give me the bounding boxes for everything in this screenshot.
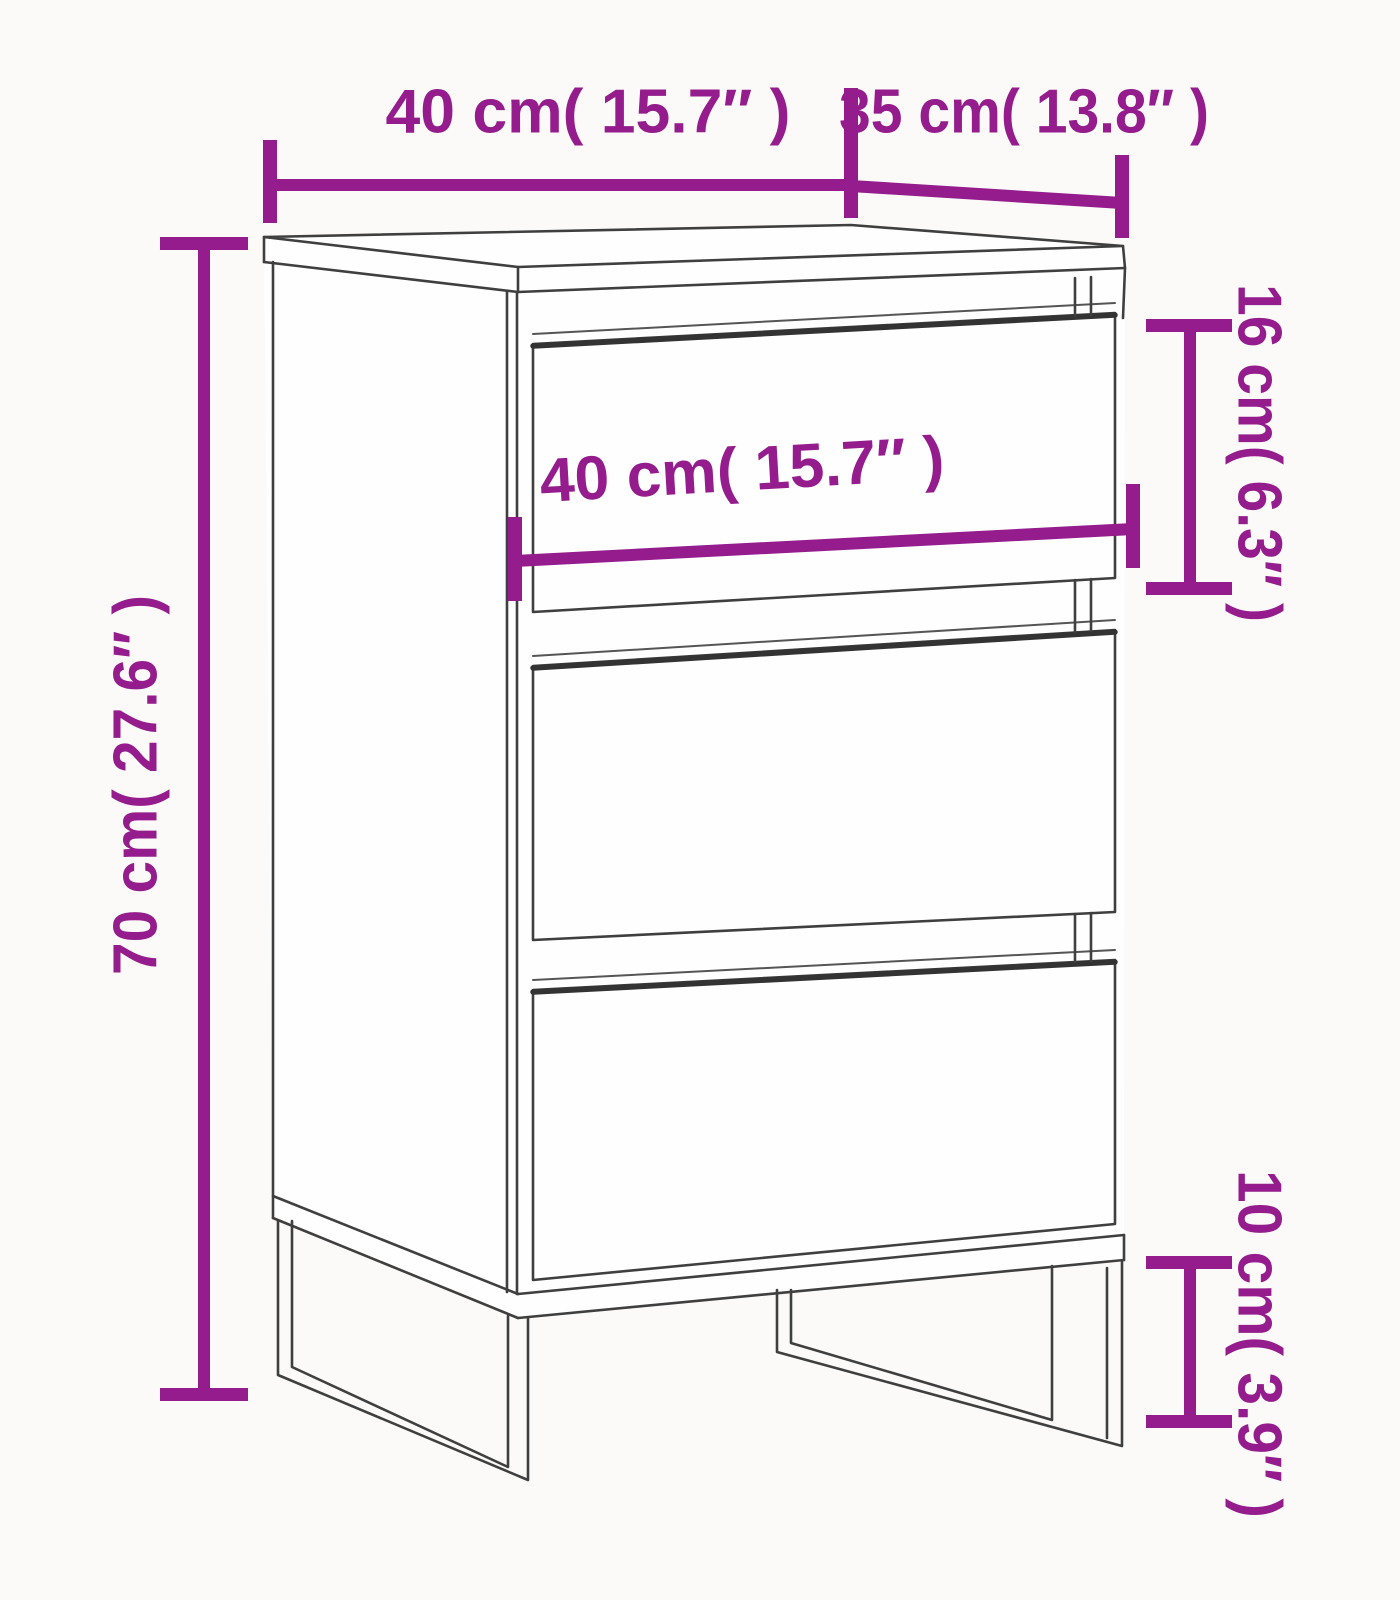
sideboard-dimension-diagram: 40 cm( 15.7″ ) 35 cm( 13.8″ ) 70 cm( 27.… xyxy=(0,0,1400,1600)
height-cap-bottom xyxy=(160,1388,248,1401)
cabinet-body-face xyxy=(264,225,1125,1318)
height-cap-top xyxy=(160,237,248,250)
drawer-height-cap-top xyxy=(1146,319,1232,332)
drawer-width-tick-right xyxy=(1126,484,1140,568)
top-depth-label: 35 cm( 13.8″ ) xyxy=(839,78,1209,147)
top-width-label: 40 cm( 15.7″ ) xyxy=(386,78,791,147)
drawer-height-label: 16 cm( 6.3″ ) xyxy=(1225,284,1294,622)
drawer-width-tick-left xyxy=(508,517,522,601)
top-depth-tick-right xyxy=(1115,155,1129,238)
leg-height-cap-top xyxy=(1146,1256,1232,1269)
leg-height-cap-bottom xyxy=(1146,1415,1232,1428)
top-width-tick-left xyxy=(263,140,277,223)
dimension-diagram-page: 40 cm( 15.7″ ) 35 cm( 13.8″ ) 70 cm( 27.… xyxy=(0,0,1400,1600)
height-label: 70 cm( 27.6″ ) xyxy=(102,595,171,975)
drawer-height-cap-bottom xyxy=(1146,582,1232,595)
leg-height-label: 10 cm( 3.9″ ) xyxy=(1225,1170,1294,1518)
